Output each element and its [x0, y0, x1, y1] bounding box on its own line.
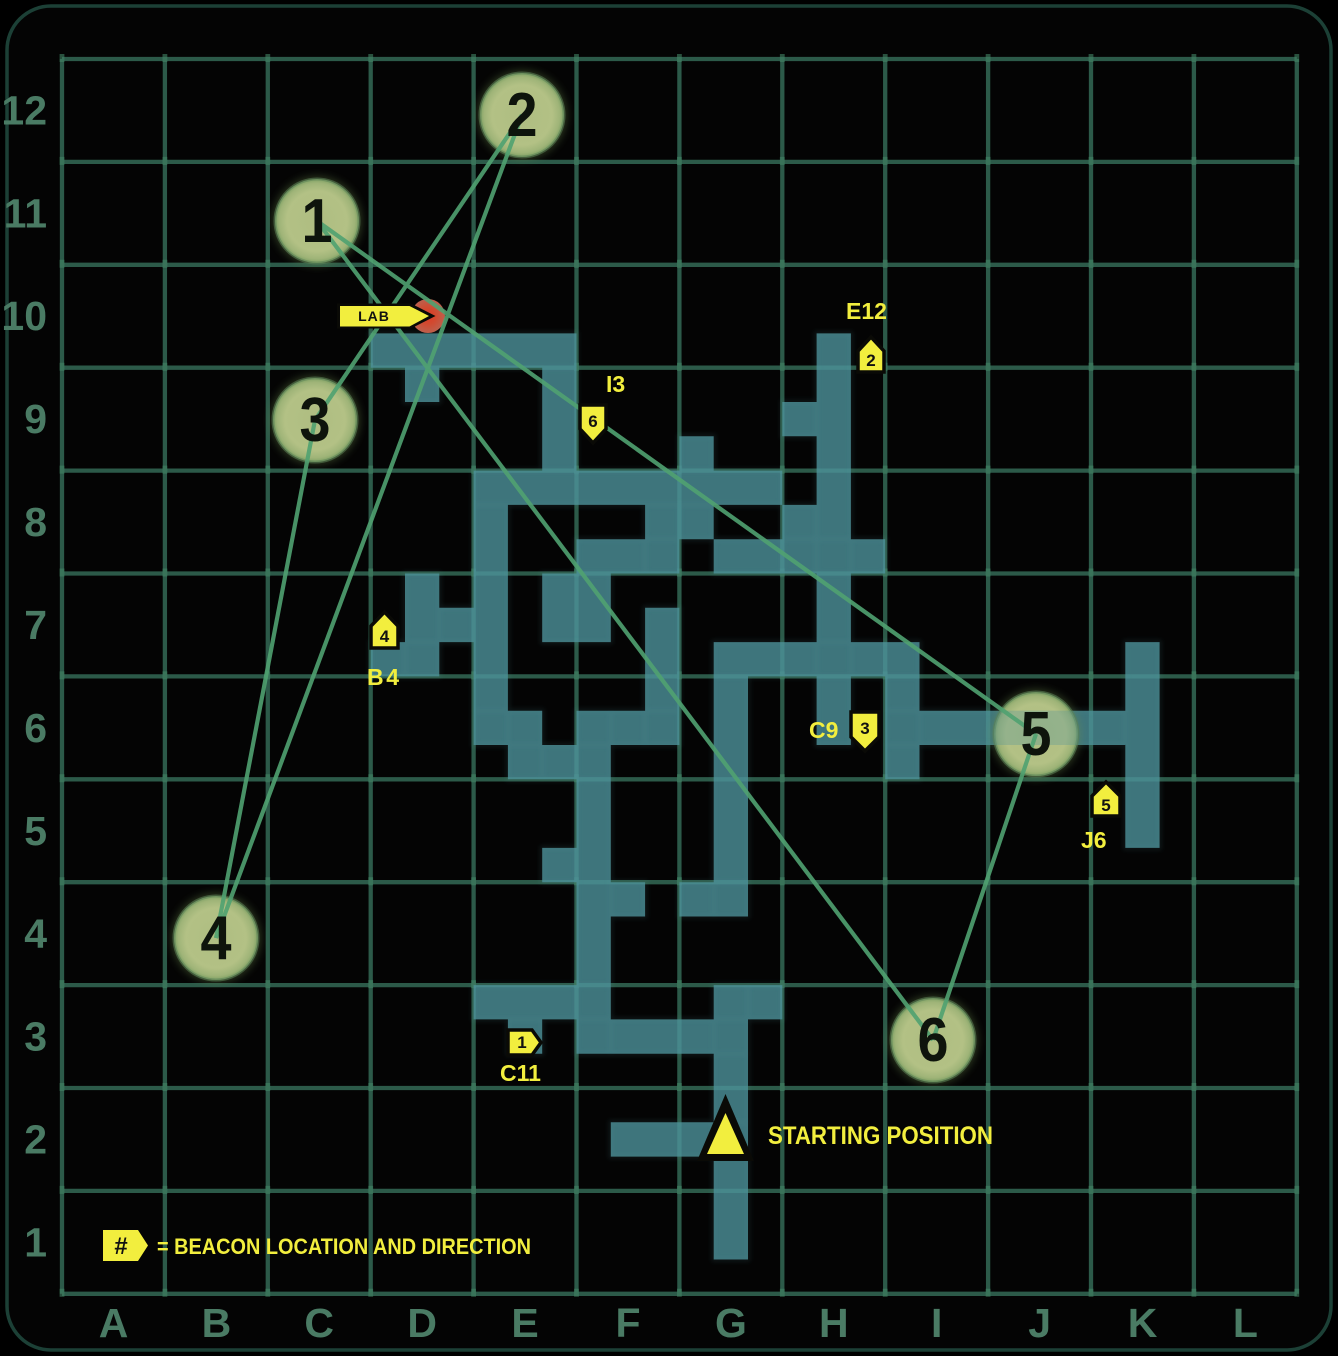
svg-text:3: 3: [860, 719, 869, 738]
svg-text:1: 1: [24, 1219, 47, 1265]
svg-text:C9: C9: [809, 717, 838, 743]
svg-text:#: #: [114, 1233, 127, 1260]
svg-text:2: 2: [507, 81, 538, 150]
svg-text:F: F: [615, 1300, 640, 1346]
svg-text:D: D: [407, 1300, 437, 1346]
svg-text:9: 9: [24, 396, 47, 442]
svg-text:5: 5: [24, 808, 47, 854]
svg-text:10: 10: [1, 293, 47, 339]
svg-text:E12: E12: [846, 298, 887, 324]
svg-text:6: 6: [918, 1006, 949, 1075]
svg-text:6: 6: [588, 412, 597, 431]
svg-text:I: I: [931, 1300, 942, 1346]
svg-text:2: 2: [24, 1117, 47, 1163]
svg-text:4: 4: [24, 911, 47, 957]
svg-text:2: 2: [866, 351, 875, 370]
svg-text:1: 1: [517, 1033, 526, 1052]
svg-text:G: G: [715, 1300, 747, 1346]
svg-text:L: L: [1233, 1300, 1258, 1346]
svg-text:LAB: LAB: [358, 308, 390, 324]
svg-text:B4: B4: [367, 664, 399, 690]
svg-text:3: 3: [24, 1014, 47, 1060]
svg-text:B: B: [202, 1300, 232, 1346]
svg-text:J: J: [1028, 1300, 1051, 1346]
svg-text:6: 6: [24, 705, 47, 751]
svg-text:11: 11: [4, 190, 47, 236]
svg-text:5: 5: [1021, 700, 1052, 769]
svg-text:3: 3: [300, 386, 331, 455]
svg-text:A: A: [99, 1300, 129, 1346]
svg-text:STARTING POSITION: STARTING POSITION: [768, 1122, 993, 1150]
svg-text:I3: I3: [606, 371, 625, 397]
svg-text:5: 5: [1101, 796, 1110, 815]
svg-text:K: K: [1128, 1300, 1158, 1346]
svg-text:4: 4: [201, 904, 232, 973]
svg-text:J6: J6: [1081, 827, 1107, 853]
svg-text:8: 8: [24, 499, 47, 545]
svg-text:E: E: [511, 1300, 538, 1346]
svg-text:C11: C11: [500, 1060, 541, 1086]
svg-text:4: 4: [380, 627, 390, 646]
svg-text:7: 7: [24, 602, 47, 648]
svg-text:12: 12: [1, 88, 47, 134]
svg-text:H: H: [819, 1300, 849, 1346]
svg-text:1: 1: [302, 187, 333, 256]
svg-text:= BEACON LOCATION AND DIRECTIO: = BEACON LOCATION AND DIRECTION: [157, 1234, 531, 1259]
svg-text:C: C: [304, 1300, 334, 1346]
